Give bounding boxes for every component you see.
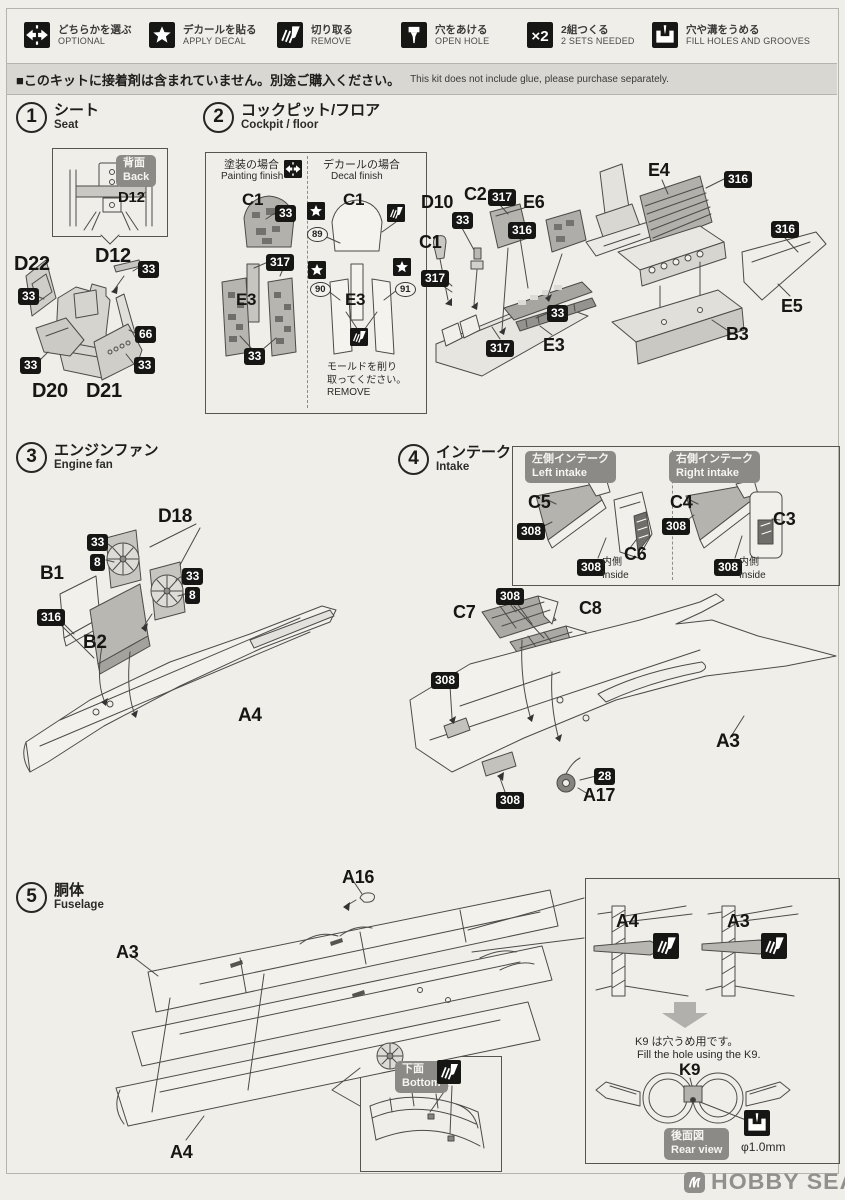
step-4-header: 4 インテーク Intake [398,444,511,475]
part-label: D12 [95,245,131,268]
decal-number-badge: 316 [725,172,751,187]
step-2-title-en: Cockpit / floor [241,119,380,132]
part-label: D22 [14,253,50,276]
x2-icon: ×2 [527,22,553,48]
decal-number-badge: 308 [497,589,523,604]
legend-label-en: 2 SETS NEEDED [561,36,635,46]
intake-box-divider [672,450,673,580]
step-4-title-en: Intake [436,461,511,474]
step-1-header: 1 シート Seat [16,102,99,133]
part-label: C7 [453,602,475,623]
seat-back-inset-box [52,148,168,237]
seat-assembly-diagram [26,260,142,380]
finish-option-box [205,152,427,414]
step-1-number: 1 [16,102,47,133]
part-label: A17 [583,785,615,806]
open-hole-icon [401,22,427,48]
legend-item: どちらかを選ぶOPTIONAL [24,15,149,55]
cockpit-floor-diagram [434,204,597,376]
fuselage-assembly-diagram [116,882,584,1140]
decal-number-badge: 308 [497,793,523,808]
decal-number-badge: 33 [183,569,202,584]
decal-number-badge: 8 [186,588,199,603]
legend-label-jp: 2組つくる [561,24,635,36]
decal-number-badge: 33 [135,358,154,373]
decal-number-badge: 33 [21,358,40,373]
part-label: E6 [523,192,544,213]
decal-icon [149,22,175,48]
step-5-title-jp: 胴体 [54,882,104,899]
part-label: B1 [40,563,64,585]
step-5-number: 5 [16,882,47,913]
decal-number-badge: 33 [88,535,107,550]
decal-number-badge: 317 [489,190,515,205]
part-label: B3 [726,324,748,345]
hobby-search-logo [684,1172,705,1193]
upper-fuselage-diagram [410,594,836,794]
decal-number-badge: 317 [487,341,513,356]
part-label: A4 [238,705,262,727]
decal-number-badge: 316 [772,222,798,237]
step-4-number: 4 [398,444,429,475]
decal-number-badge: 316 [38,610,64,625]
part-label: A3 [716,731,740,753]
step-3-title-en: Engine fan [54,459,159,472]
legend-label-en: OPTIONAL [58,36,132,46]
remove-icon [277,22,303,48]
legend-item: 穴や溝をうめるFILL HOLES AND GROOVES [652,15,822,55]
step-3-header: 3 エンジンファン Engine fan [16,442,159,473]
watermark-text: HOBBY SEARCH [711,1169,845,1195]
svg-text:×2: ×2 [531,28,548,45]
notice-text-en: This kit does not include glue, please p… [410,74,669,85]
decal-number-badge: 28 [595,769,614,784]
legend-item: 穴をあけるOPEN HOLE [401,15,527,55]
part-label: A3 [116,942,138,963]
part-label: D21 [86,380,122,403]
part-label: E4 [648,160,669,181]
bottom-view-inset-box [360,1056,502,1172]
step-3-title-jp: エンジンファン [54,442,159,459]
part-label: D18 [158,506,192,528]
legend-label-jp: 穴をあける [435,24,489,36]
legend-label-en: FILL HOLES AND GROOVES [686,36,810,46]
notice-text-jp: ■このキットに接着剤は含まれていません。別途ご購入ください。 [16,70,400,89]
part-label: B2 [83,632,107,654]
legend-row: どちらかを選ぶOPTIONAL デカールを貼るAPPLY DECAL 切り取るR… [24,15,824,55]
legend-label-en: APPLY DECAL [183,36,257,46]
legend-label-jp: どちらかを選ぶ [58,24,132,36]
part-label: D20 [32,380,68,403]
part-label: E5 [781,296,802,317]
part-label: A16 [342,867,374,888]
part-label: C2 [464,184,486,205]
step-4-title-jp: インテーク [436,444,511,461]
decal-number-badge: 33 [453,213,472,228]
legend-item: デカールを貼るAPPLY DECAL [149,15,277,55]
fuselage-detail-box [585,878,840,1164]
part-label: A4 [170,1142,192,1163]
cockpit-module-diagram [586,164,826,364]
fill-icon [652,22,678,48]
legend-item: ×22組つくる2 SETS NEEDED [527,15,652,55]
step-1-title-en: Seat [54,119,99,132]
legend-label-en: REMOVE [311,36,353,46]
legend-label-en: OPEN HOLE [435,36,489,46]
finish-option-divider [307,156,308,408]
decal-number-badge: 33 [139,262,158,277]
intake-detail-box [512,446,840,586]
decal-number-badge: 33 [548,306,567,321]
step-3-number: 3 [16,442,47,473]
step-5-title-en: Fuselage [54,899,104,912]
step-2-number: 2 [203,102,234,133]
decal-number-badge: 8 [91,555,104,570]
part-label: C8 [579,598,601,619]
step-1-title-jp: シート [54,102,99,119]
step-2-header: 2 コックピット/フロア Cockpit / floor [203,102,380,133]
legend-label-jp: 穴や溝をうめる [686,24,810,36]
watermark: HOBBY SEARCH [684,1169,845,1195]
legend-item: 切り取るREMOVE [277,15,401,55]
legend-label-jp: デカールを貼る [183,24,257,36]
legend-label-jp: 切り取る [311,24,353,36]
step-2-title-jp: コックピット/フロア [241,102,380,119]
decal-number-badge: 316 [509,223,535,238]
optional-icon [24,22,50,48]
step-5-header: 5 胴体 Fuselage [16,882,104,913]
engine-fan-diagram [24,524,336,772]
decal-number-badge: 66 [136,327,155,342]
decal-number-badge: 33 [19,289,38,304]
part-label: E3 [543,335,564,356]
decal-number-badge: 308 [432,673,458,688]
glue-notice-bar: ■このキットに接着剤は含まれていません。別途ご購入ください。 This kit … [7,63,837,95]
instruction-sheet-page: どちらかを選ぶOPTIONAL デカールを貼るAPPLY DECAL 切り取るR… [0,0,845,1200]
